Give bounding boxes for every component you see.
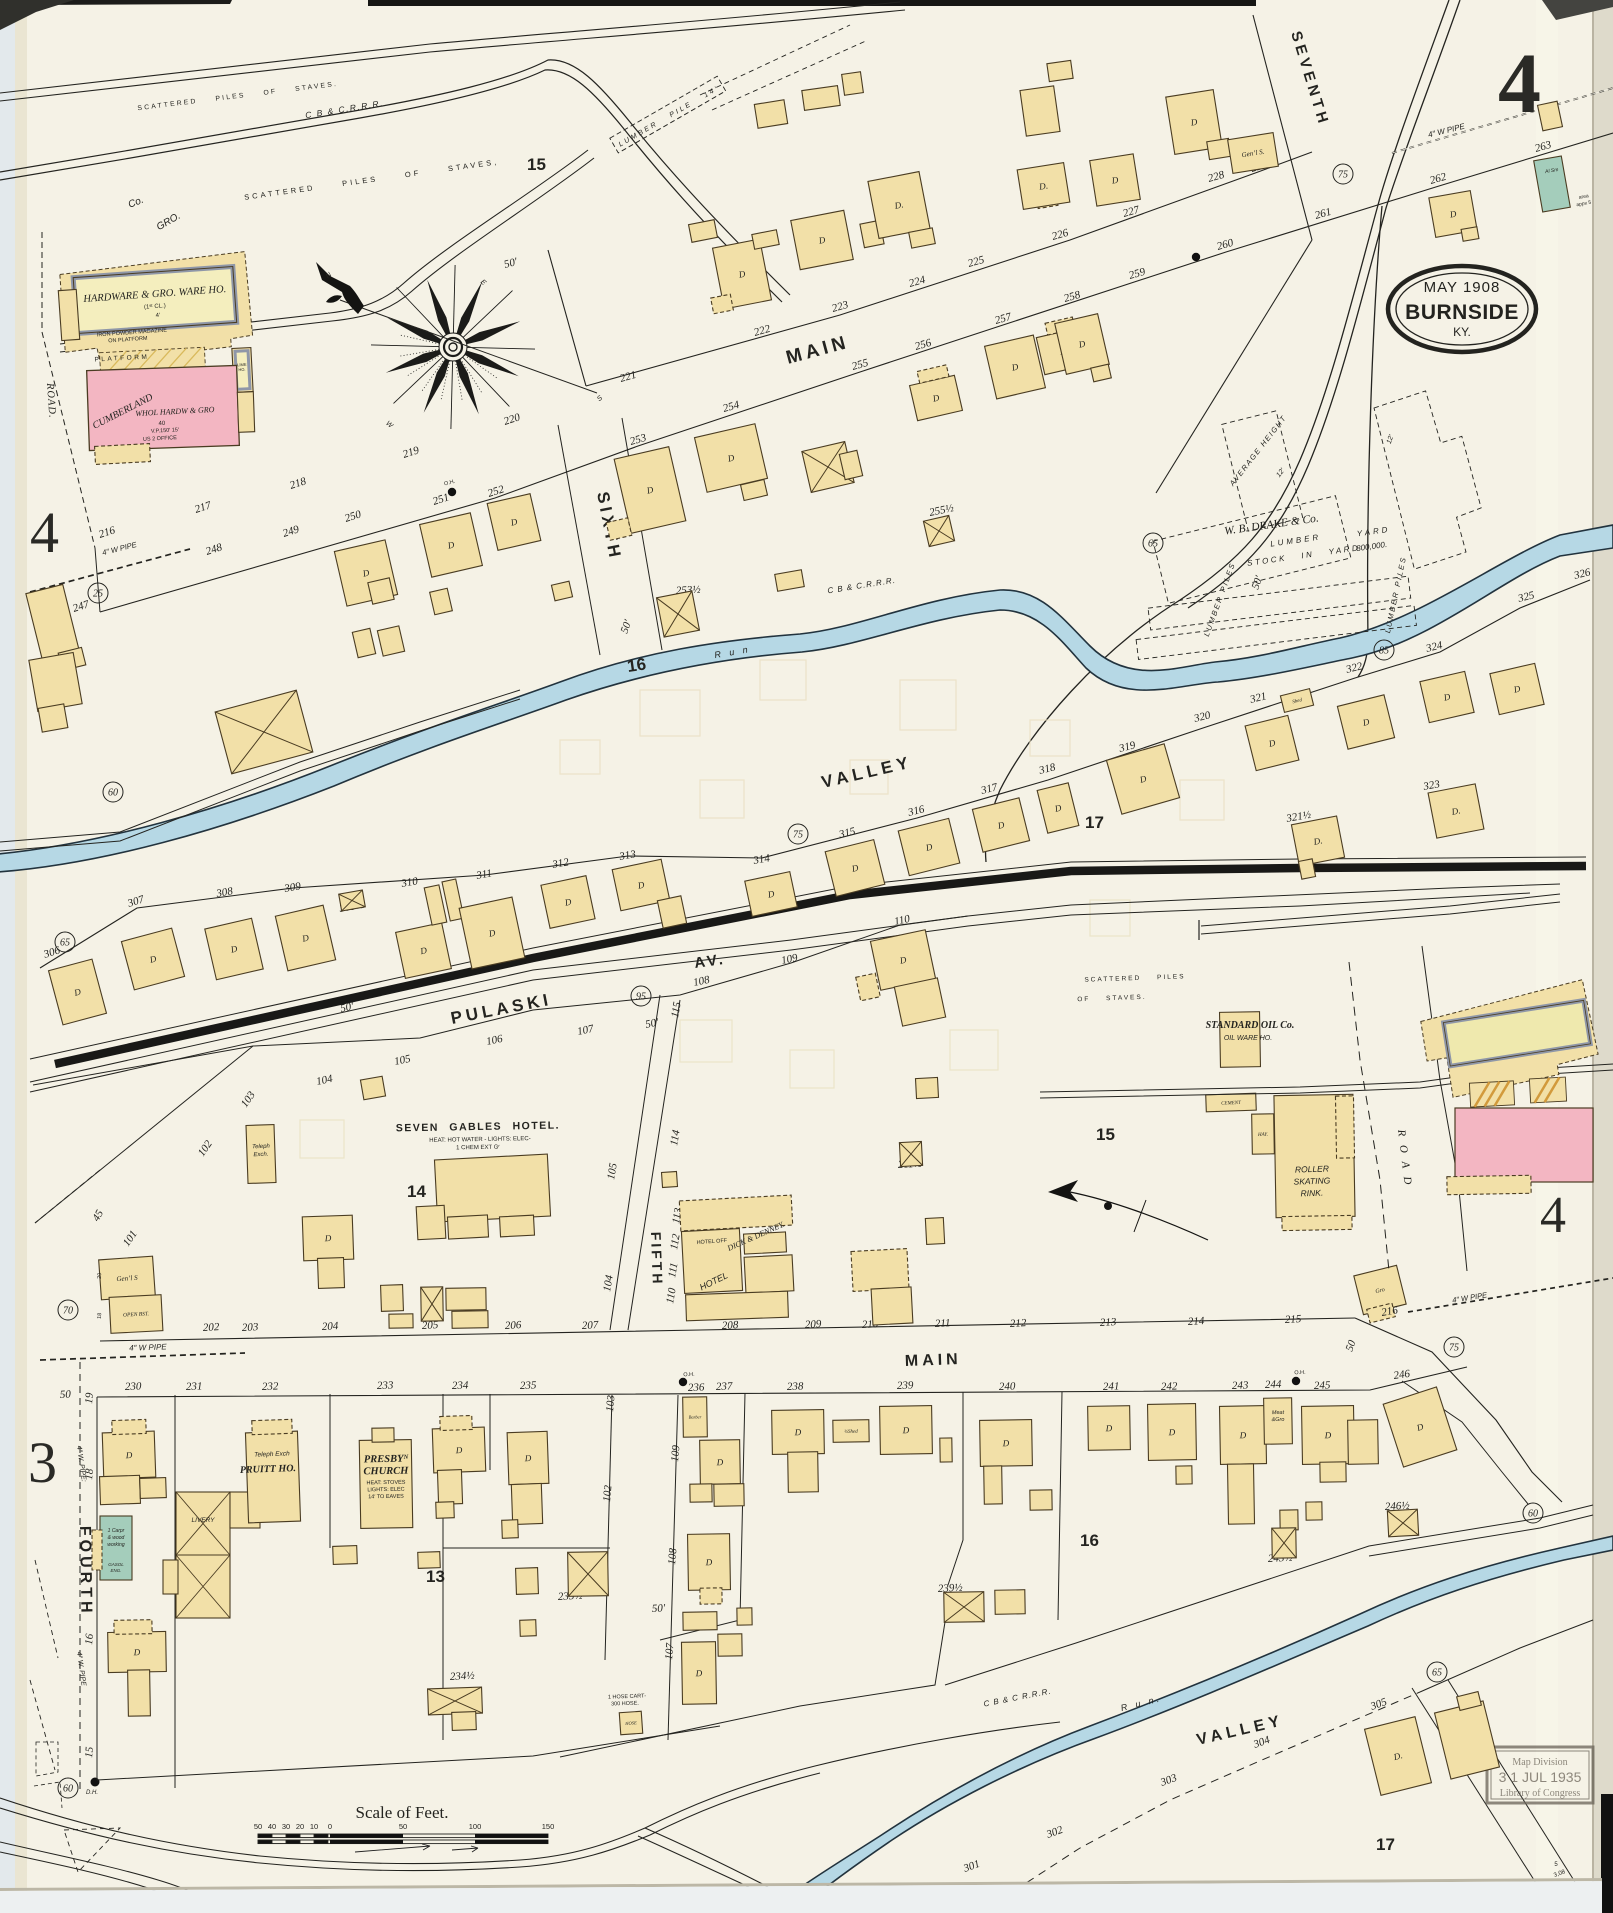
svg-text:D: D	[324, 1233, 332, 1243]
svg-text:65: 65	[60, 938, 70, 949]
svg-text:17: 17	[1085, 813, 1104, 832]
svg-text:D: D	[716, 1457, 724, 1467]
svg-text:D: D	[1002, 1438, 1010, 1448]
svg-text:60: 60	[108, 788, 118, 799]
svg-text:103: 103	[604, 1394, 617, 1412]
svg-text:234½: 234½	[450, 1670, 475, 1683]
svg-text:D.: D.	[1037, 181, 1048, 192]
svg-text:D: D	[524, 1453, 532, 1463]
svg-text:18: 18	[83, 1468, 96, 1481]
svg-text:10: 10	[310, 1822, 318, 1831]
svg-text:D: D	[133, 1647, 141, 1657]
svg-text:60: 60	[63, 1784, 73, 1795]
svg-text:PRESBYᴺ: PRESBYᴺ	[364, 1454, 410, 1466]
svg-text:15: 15	[1096, 1125, 1115, 1144]
svg-text:239: 239	[897, 1379, 914, 1392]
svg-text:CHURCH: CHURCH	[363, 1466, 409, 1478]
svg-text:Scale of Feet.: Scale of Feet.	[356, 1803, 449, 1822]
svg-text:LIGHTS: ELEC: LIGHTS: ELEC	[367, 1487, 404, 1494]
svg-text:CEMENT: CEMENT	[1221, 1101, 1242, 1107]
svg-text:203: 203	[242, 1321, 260, 1334]
svg-text:150: 150	[542, 1822, 555, 1831]
svg-text:STANDARD OIL Co.: STANDARD OIL Co.	[1206, 1020, 1295, 1031]
svg-text:½Shed: ½Shed	[844, 1430, 858, 1435]
svg-text:4: 4	[30, 500, 59, 565]
svg-text:16: 16	[1080, 1531, 1099, 1550]
svg-text:300 HOSE.: 300 HOSE.	[611, 1701, 639, 1708]
svg-text:238: 238	[787, 1380, 804, 1393]
svg-text:209: 209	[805, 1318, 823, 1331]
svg-text:14: 14	[407, 1182, 426, 1201]
svg-text:HAY.: HAY.	[1257, 1133, 1268, 1138]
svg-text:RINK.: RINK.	[1300, 1188, 1323, 1199]
svg-text:17: 17	[1376, 1835, 1395, 1854]
svg-text:231: 231	[186, 1380, 203, 1393]
svg-text:D: D	[695, 1668, 703, 1678]
svg-text:0: 0	[328, 1822, 332, 1831]
svg-text:&Gro: &Gro	[1272, 1417, 1285, 1423]
svg-text:D: D	[1168, 1427, 1176, 1437]
svg-text:Map Division: Map Division	[1512, 1757, 1567, 1768]
svg-text:212: 212	[1010, 1317, 1028, 1330]
svg-text:HO.: HO.	[238, 367, 245, 372]
svg-text:15: 15	[83, 1746, 96, 1759]
svg-text:D.: D.	[1312, 835, 1323, 847]
svg-text:Library of Congress: Library of Congress	[1500, 1788, 1581, 1799]
svg-text:4: 4	[1498, 35, 1541, 131]
svg-text:OIL WARE HO.: OIL WARE HO.	[1224, 1035, 1272, 1042]
svg-text:1 CHEM EXT Gʳ: 1 CHEM EXT Gʳ	[456, 1144, 500, 1152]
svg-text:working: working	[107, 1542, 124, 1548]
svg-text:85: 85	[1379, 646, 1389, 657]
svg-text:GASOL: GASOL	[108, 1562, 124, 1567]
svg-text:D.: D.	[1450, 805, 1461, 817]
svg-text:D: D	[1105, 1423, 1113, 1433]
svg-text:D.H.: D.H.	[86, 1790, 98, 1796]
svg-text:204: 204	[322, 1320, 340, 1333]
svg-text:Meat: Meat	[1272, 1410, 1285, 1416]
svg-text:BURNSIDE: BURNSIDE	[1405, 301, 1519, 324]
svg-text:14′ TO EAVES: 14′ TO EAVES	[368, 1494, 404, 1501]
svg-text:HEAT: STOVES: HEAT: STOVES	[366, 1480, 405, 1487]
svg-text:108: 108	[666, 1547, 679, 1565]
svg-text:3 1 JUL 1935: 3 1 JUL 1935	[1499, 1769, 1582, 1785]
svg-text:240: 240	[999, 1380, 1016, 1393]
svg-text:D: D	[1324, 1430, 1332, 1440]
svg-text:234: 234	[452, 1379, 469, 1392]
svg-text:KY.: KY.	[1453, 325, 1471, 339]
svg-text:246: 246	[1393, 1368, 1412, 1382]
svg-text:50′: 50′	[652, 1602, 667, 1615]
svg-text:Barber: Barber	[689, 1414, 702, 1419]
svg-text:70: 70	[63, 1306, 73, 1317]
svg-text:O.H.: O.H.	[683, 1372, 695, 1378]
svg-text:& wood: & wood	[108, 1535, 125, 1541]
svg-text:208: 208	[722, 1319, 740, 1332]
svg-text:235: 235	[520, 1379, 537, 1392]
svg-text:FOURTH: FOURTH	[76, 1526, 95, 1617]
svg-text:95: 95	[636, 992, 646, 1003]
svg-text:242: 242	[1161, 1380, 1178, 1393]
svg-text:4: 4	[1540, 1187, 1566, 1244]
svg-text:75: 75	[1449, 1343, 1459, 1354]
svg-text:D: D	[125, 1450, 133, 1460]
svg-text:D: D	[902, 1425, 910, 1435]
svg-text:D: D	[1239, 1430, 1247, 1440]
svg-text:75: 75	[793, 830, 803, 841]
svg-text:19: 19	[83, 1392, 96, 1405]
svg-text:233: 233	[377, 1379, 394, 1392]
svg-text:230: 230	[125, 1380, 142, 1393]
svg-text:244: 244	[1265, 1378, 1282, 1391]
svg-text:ENG.: ENG.	[110, 1568, 121, 1573]
svg-text:50: 50	[254, 1822, 262, 1831]
svg-text:236: 236	[688, 1381, 705, 1394]
svg-text:Teleph Exch: Teleph Exch	[254, 1450, 290, 1458]
svg-text:215: 215	[1285, 1313, 1303, 1326]
svg-text:O.H.: O.H.	[1294, 1370, 1306, 1376]
svg-text:100: 100	[469, 1822, 482, 1831]
svg-text:D.: D.	[893, 199, 904, 211]
svg-text:D: D	[794, 1427, 802, 1437]
svg-text:16: 16	[626, 655, 647, 676]
svg-text:D: D	[705, 1557, 713, 1567]
svg-text:50: 50	[399, 1822, 407, 1831]
svg-text:111: 111	[666, 1262, 680, 1279]
svg-text:75: 75	[1338, 170, 1348, 181]
svg-text:207: 207	[582, 1319, 600, 1332]
svg-text:50: 50	[60, 1388, 72, 1401]
svg-text:FIFTH: FIFTH	[648, 1232, 666, 1287]
svg-text:LIVERY: LIVERY	[192, 1517, 216, 1524]
svg-text:65: 65	[1432, 1668, 1442, 1679]
svg-text:20: 20	[97, 1273, 104, 1280]
svg-text:30: 30	[282, 1822, 290, 1831]
svg-text:Teleph: Teleph	[252, 1144, 271, 1151]
svg-text:16: 16	[83, 1633, 96, 1646]
svg-text:102: 102	[601, 1484, 614, 1502]
svg-text:18: 18	[97, 1313, 104, 1320]
svg-text:Exch.: Exch.	[253, 1152, 268, 1159]
svg-text:40: 40	[268, 1822, 276, 1831]
svg-text:202: 202	[203, 1321, 221, 1334]
svg-text:13: 13	[426, 1567, 445, 1586]
svg-text:213: 213	[1100, 1316, 1118, 1329]
svg-text:109: 109	[669, 1444, 682, 1462]
svg-text:40: 40	[158, 421, 166, 427]
svg-text:107: 107	[663, 1642, 676, 1660]
svg-text:245: 245	[1314, 1379, 1331, 1392]
svg-text:206: 206	[505, 1319, 523, 1332]
svg-text:MAIN: MAIN	[905, 1351, 962, 1370]
svg-text:20: 20	[296, 1822, 304, 1831]
svg-text:PRUITT HO.: PRUITT HO.	[240, 1463, 296, 1476]
svg-text:Gen’l S: Gen’l S	[116, 1274, 138, 1283]
svg-text:237: 237	[716, 1380, 733, 1393]
svg-text:D: D	[455, 1445, 463, 1455]
svg-text:1 Carpr: 1 Carpr	[108, 1528, 125, 1534]
svg-text:MAY 1908: MAY 1908	[1424, 279, 1501, 296]
svg-text:211: 211	[935, 1317, 951, 1330]
svg-text:243: 243	[1232, 1379, 1249, 1392]
svg-text:3: 3	[28, 1430, 57, 1495]
svg-text:232: 232	[262, 1380, 279, 1393]
svg-text:214: 214	[1188, 1315, 1206, 1328]
svg-text:HOSE: HOSE	[624, 1720, 637, 1726]
svg-text:241: 241	[1103, 1380, 1120, 1393]
svg-text:ROLLER: ROLLER	[1295, 1163, 1329, 1174]
svg-text:SKATING: SKATING	[1293, 1175, 1330, 1186]
svg-text:60: 60	[1528, 1509, 1538, 1520]
svg-text:15: 15	[527, 155, 546, 174]
svg-text:4″ W PIPE: 4″ W PIPE	[129, 1342, 167, 1352]
